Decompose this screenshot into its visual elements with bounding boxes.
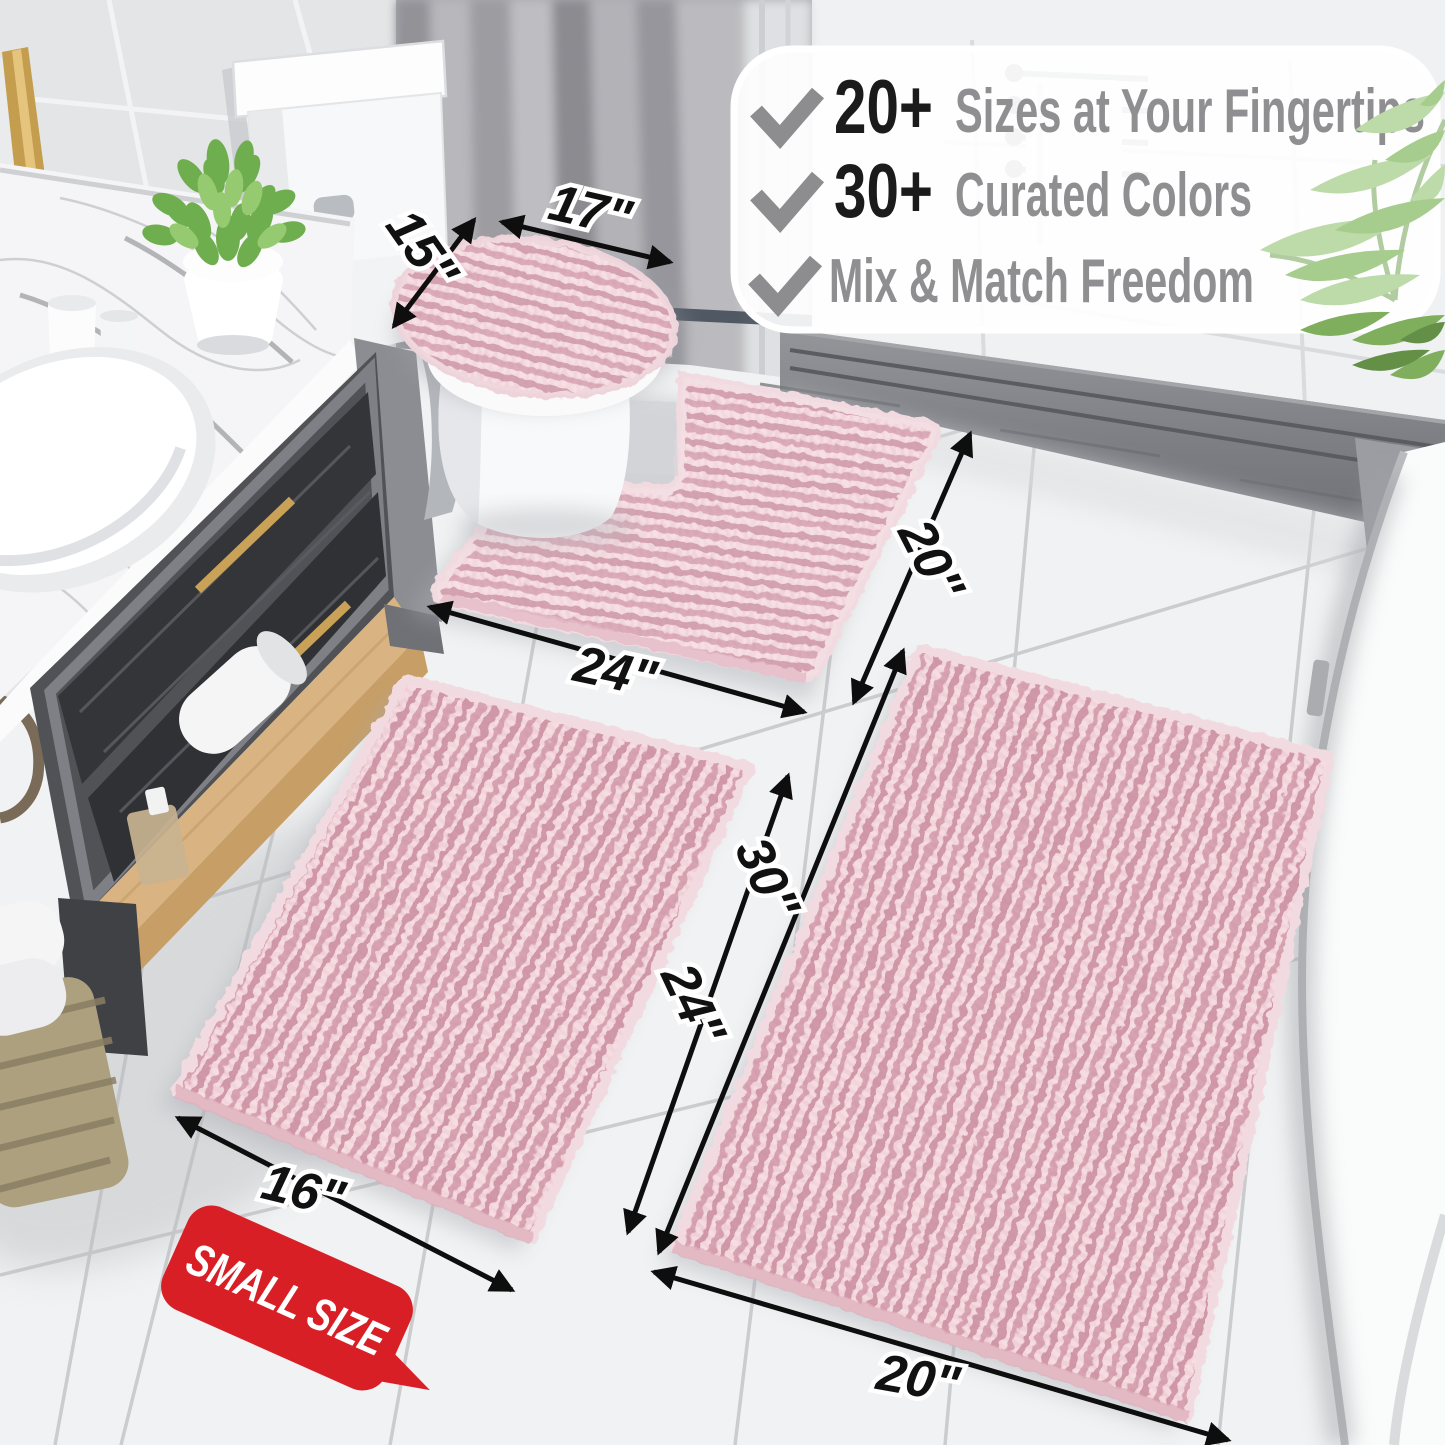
svg-text:Sizes at Your Fingertips: Sizes at Your Fingertips bbox=[955, 77, 1425, 146]
svg-text:20+: 20+ bbox=[834, 65, 933, 150]
svg-text:30+: 30+ bbox=[834, 149, 933, 234]
svg-text:Mix & Match Freedom: Mix & Match Freedom bbox=[829, 247, 1254, 316]
svg-text:Curated Colors: Curated Colors bbox=[955, 161, 1252, 230]
